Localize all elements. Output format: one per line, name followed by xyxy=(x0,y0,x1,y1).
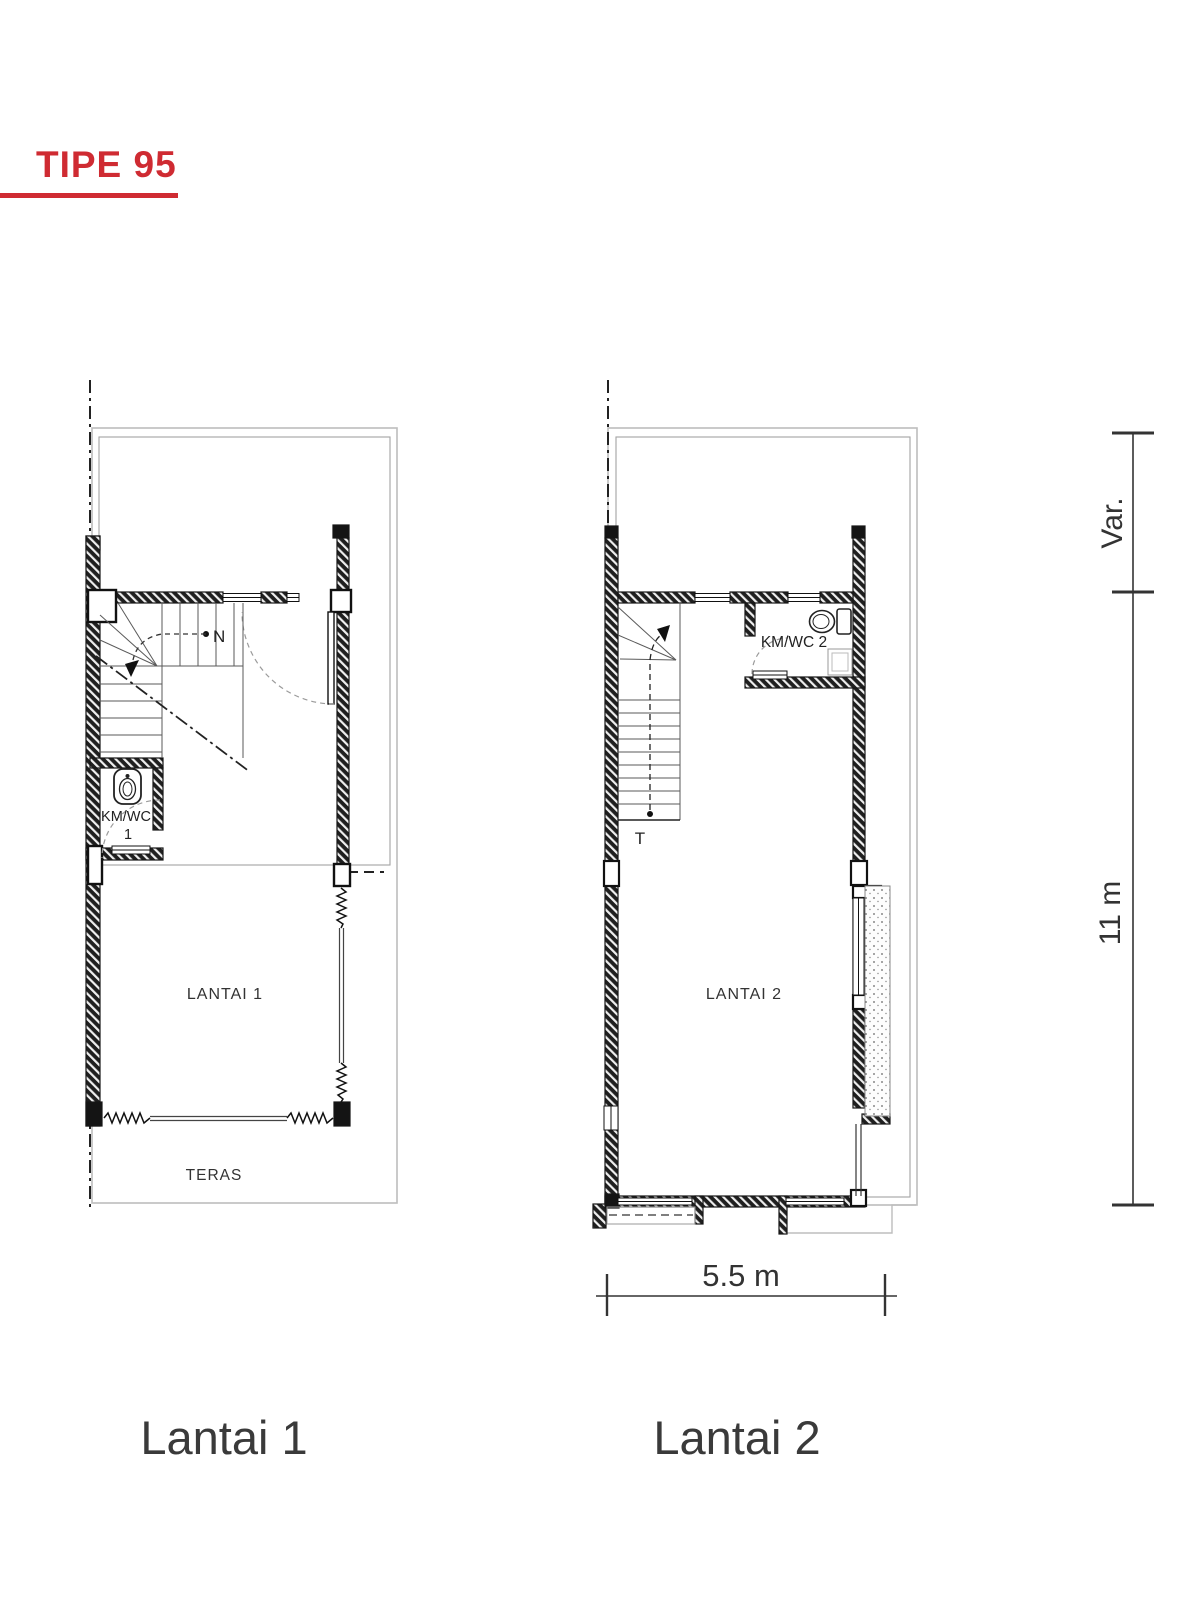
room-label-lantai2: LANTAI 2 xyxy=(706,986,782,1003)
folding-door-symbols xyxy=(104,888,346,1123)
room-label-lantai1: LANTAI 1 xyxy=(187,986,263,1003)
title-underline xyxy=(0,193,178,198)
columns-lantai-2 xyxy=(604,861,881,1206)
balcony-planter xyxy=(865,886,890,1116)
bath2-label: KM/WC 2 xyxy=(761,634,827,651)
caption-lantai-2: Lantai 2 xyxy=(653,1410,820,1465)
stair-direction-down xyxy=(647,625,670,817)
stair-break-line xyxy=(96,656,250,772)
stair-marker-label: N xyxy=(213,627,225,646)
balcony-parapet xyxy=(856,1124,861,1196)
floorplan-sheet: TIPE 95 xyxy=(0,0,1200,1604)
bath1-label: KM/WC xyxy=(101,809,151,825)
dimension-height: Var. 11 m xyxy=(1080,410,1190,1220)
door-swing-arc xyxy=(242,612,334,704)
room-label-teras: TERAS xyxy=(186,1167,243,1184)
door-leaf xyxy=(328,612,334,704)
caption-lantai-1: Lantai 1 xyxy=(140,1410,307,1465)
stair-marker-label: T xyxy=(635,829,645,848)
dimension-height-label: 11 m xyxy=(1094,881,1127,945)
floorplan-lantai-1: N LANTAI 1 TERAS KM/WC 1 xyxy=(50,350,420,1230)
stair-direction-up xyxy=(125,631,209,677)
porch-outline xyxy=(787,1205,916,1233)
toilet-icon xyxy=(114,769,141,804)
dimension-front-label: Var. xyxy=(1096,497,1129,548)
stairs-lantai-2 xyxy=(618,603,680,820)
thin-walls xyxy=(150,928,344,1121)
floorplan-lantai-2: T KM/WC 2 LANTAI 2 5.5 m xyxy=(555,350,955,1340)
dimension-width-label: 5.5 m xyxy=(702,1258,780,1293)
toilet-icon xyxy=(810,609,852,634)
bath1-number: 1 xyxy=(124,827,132,843)
page-title: TIPE 95 xyxy=(36,144,177,186)
shower-tray xyxy=(828,649,852,675)
